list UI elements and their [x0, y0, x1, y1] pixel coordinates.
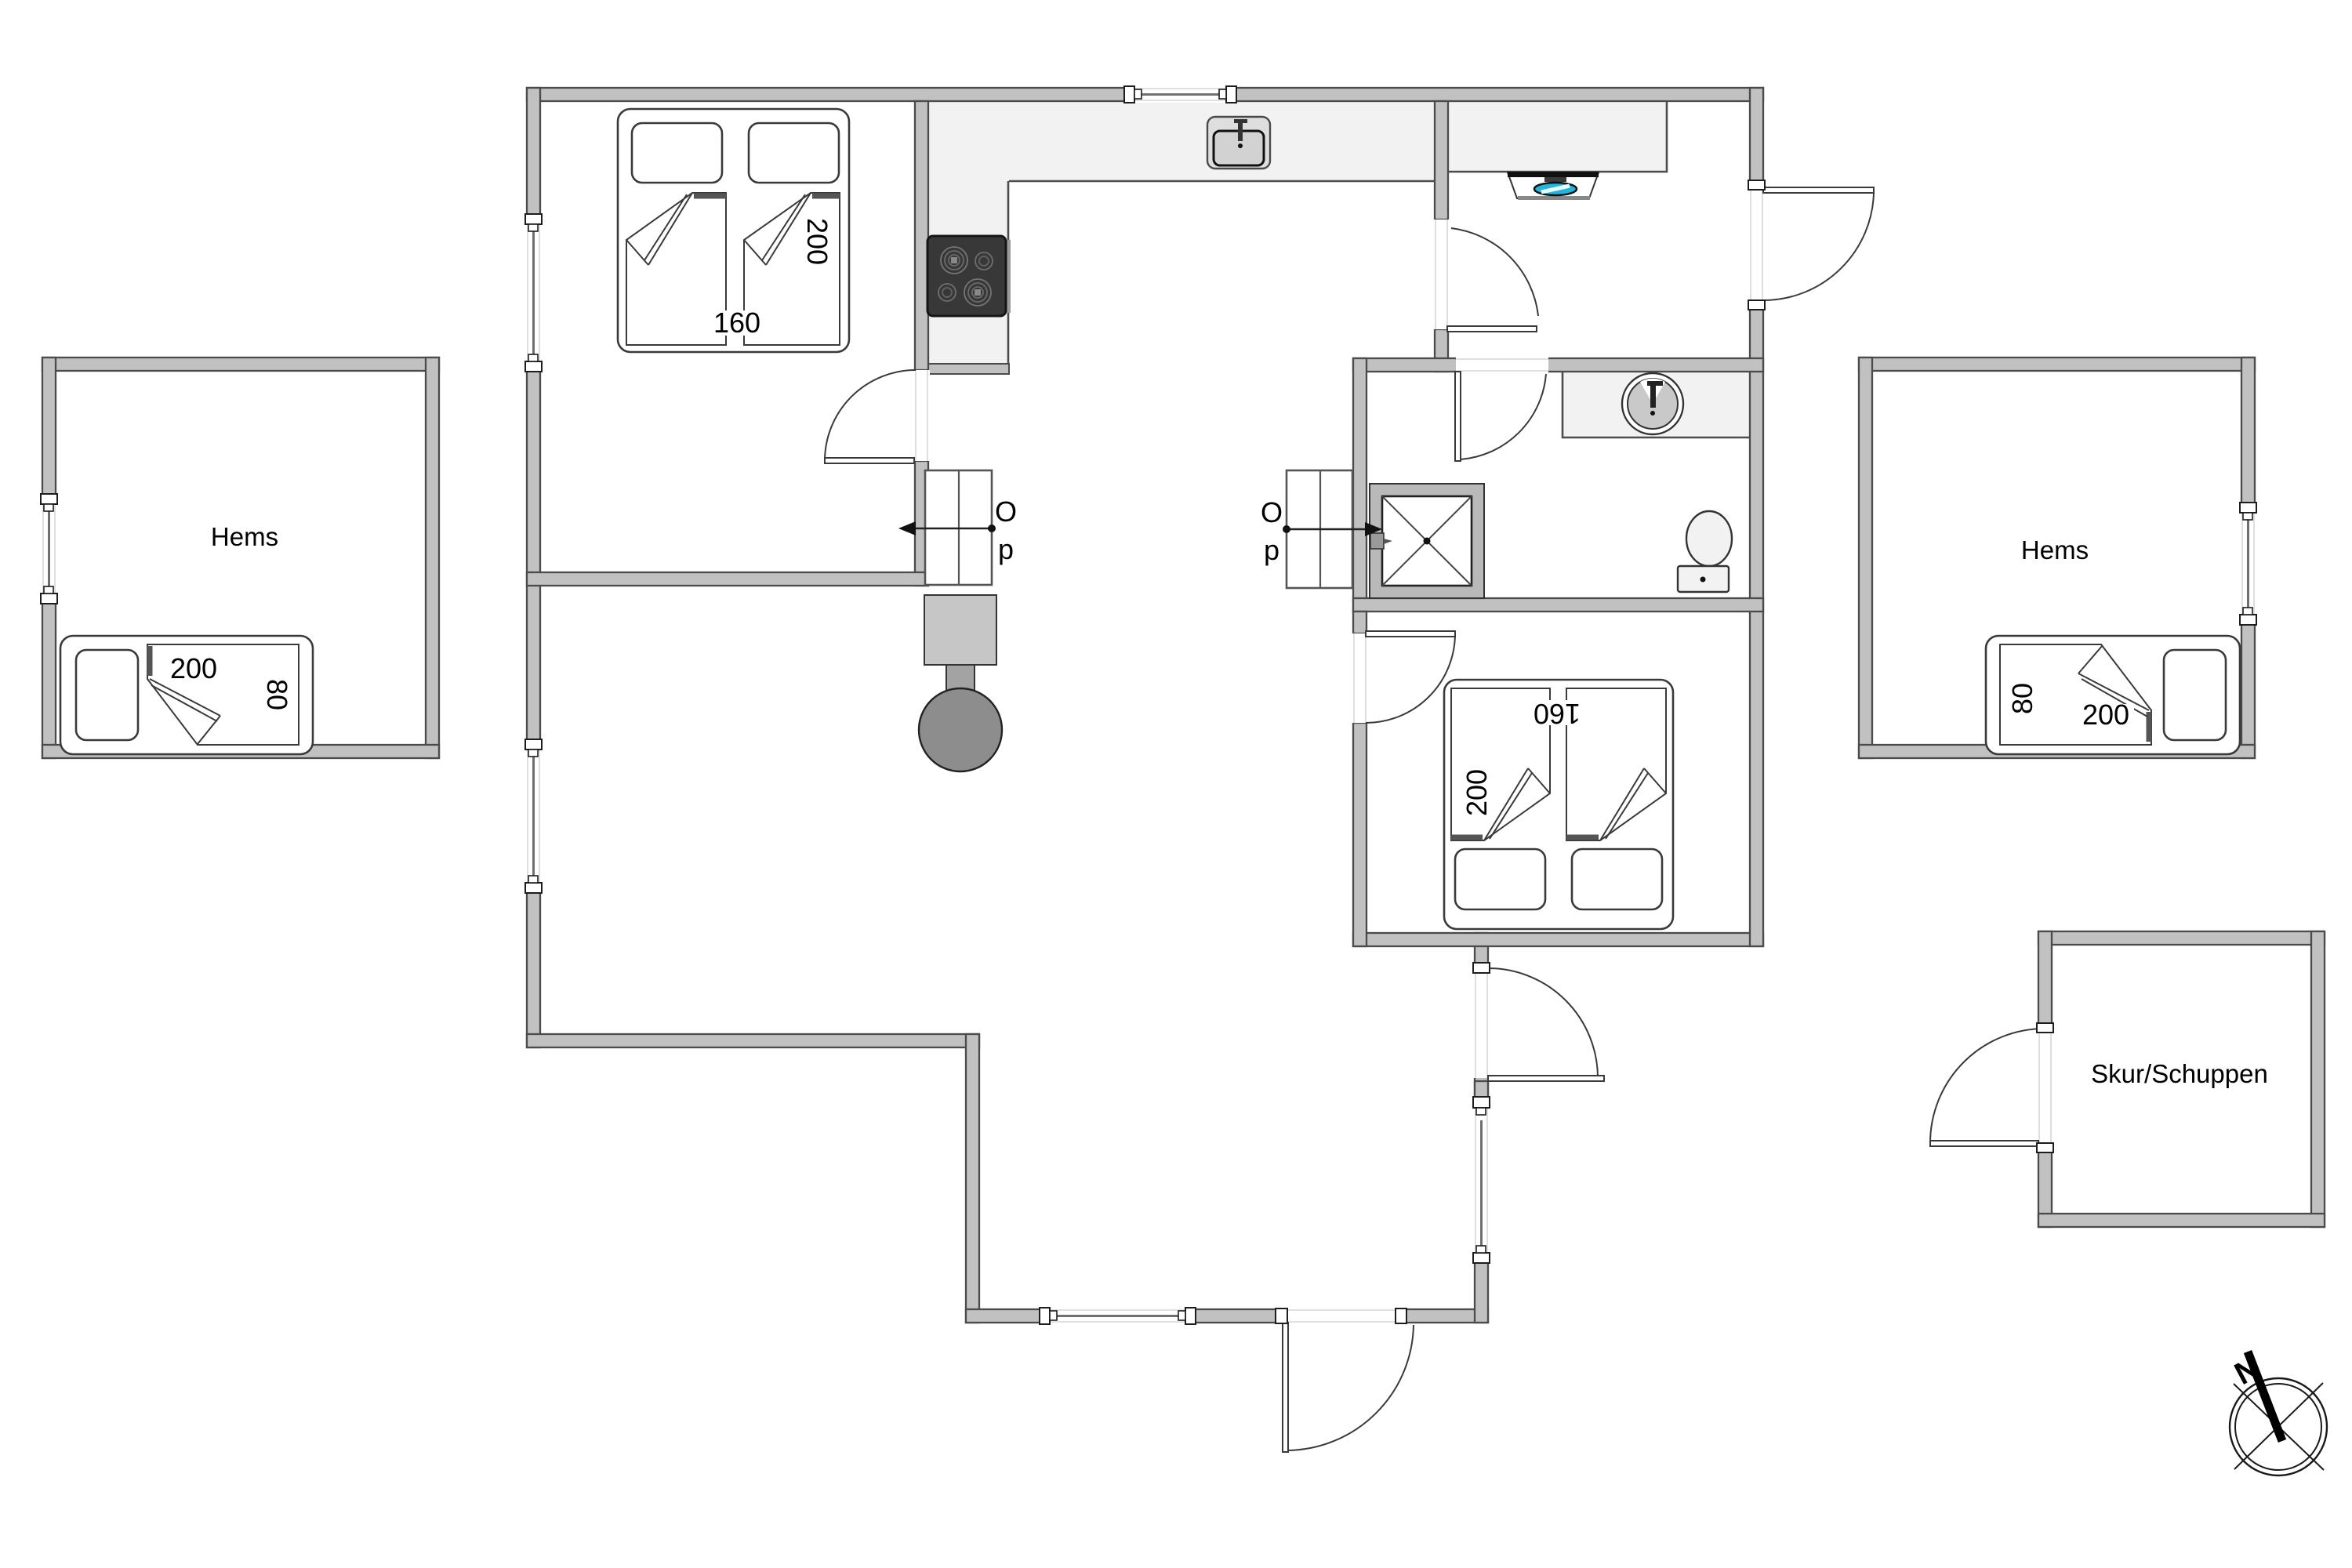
svg-text:200: 200	[2082, 699, 2129, 731]
svg-text:O: O	[995, 495, 1017, 528]
svg-text:160: 160	[713, 307, 760, 339]
svg-text:O: O	[1261, 496, 1283, 528]
svg-text:80: 80	[2006, 683, 2038, 714]
svg-text:Skur/Schuppen: Skur/Schuppen	[2091, 1059, 2268, 1088]
svg-text:200: 200	[170, 652, 217, 684]
svg-text:80: 80	[261, 679, 293, 710]
svg-text:160: 160	[1534, 698, 1581, 730]
svg-text:200: 200	[801, 218, 833, 265]
svg-text:Hems: Hems	[2021, 535, 2089, 564]
svg-text:p: p	[1264, 534, 1279, 566]
svg-text:200: 200	[1461, 769, 1493, 816]
svg-text:Hems: Hems	[211, 522, 278, 551]
svg-text:p: p	[998, 533, 1014, 565]
